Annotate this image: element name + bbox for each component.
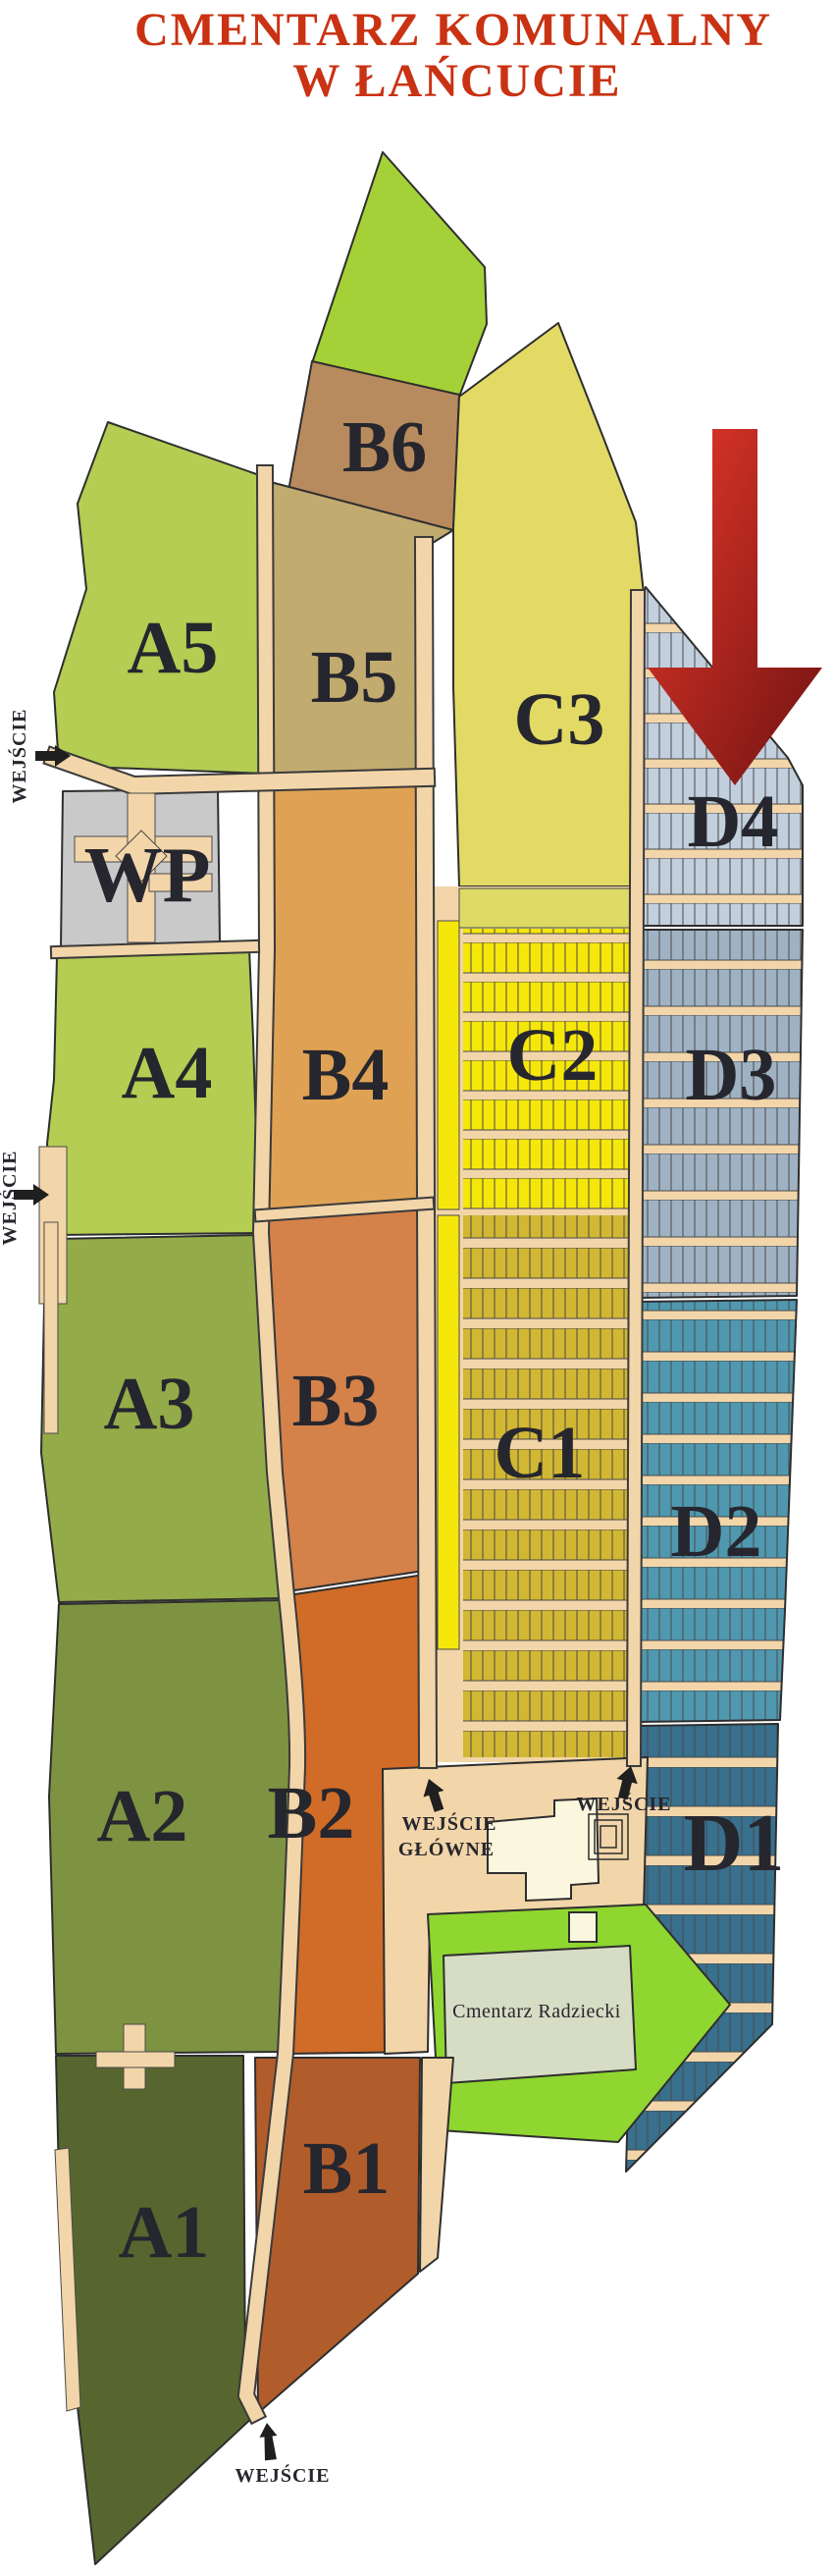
section-a3-label: A3 [104, 1363, 195, 1445]
section-b1-label: B1 [303, 2127, 391, 2210]
wp-a4-path [57, 946, 253, 952]
section-b5-label: B5 [311, 636, 398, 719]
cemetery-map-page: CMENTARZ KOMUNALNY W ŁAŃCUCIE [0, 0, 835, 2571]
section-c2-top-band [459, 888, 630, 928]
section-green-north-region [312, 152, 487, 397]
section-c3-label: C3 [514, 678, 605, 761]
section-a1-label: A1 [119, 2191, 210, 2274]
a2-structure-horizontal [96, 2052, 175, 2067]
section-a1-region [56, 2056, 255, 2564]
section-c1-label: C1 [495, 1412, 586, 1494]
b1-east-path [420, 2058, 453, 2272]
section-c2-label: C2 [507, 1014, 599, 1097]
section-b4-label: B4 [302, 1034, 390, 1116]
section-a5-region [54, 422, 265, 774]
section-d3-label: D3 [686, 1034, 777, 1116]
cemetery-map: CMENTARZ KOMUNALNY W ŁAŃCUCIE [0, 0, 835, 2571]
section-c3-region [453, 323, 644, 886]
cd-path [634, 597, 638, 1759]
section-a2-label: A2 [97, 1775, 188, 1857]
section-c1-left-strip [438, 1215, 459, 1649]
section-d1-label: D1 [684, 1798, 785, 1889]
west-upper-entrance-label: WEJŚCIE [7, 708, 30, 803]
section-d2-label: D2 [671, 1490, 762, 1573]
section-b3-label: B3 [292, 1360, 380, 1442]
bc-path [424, 546, 428, 1759]
section-b2-label: B2 [268, 1772, 355, 1854]
section-a4-label: A4 [122, 1032, 213, 1114]
map-title-line2: W ŁAŃCUCIE [292, 55, 621, 107]
soviet-cemetery-label: Cmentarz Radziecki [452, 2001, 621, 2022]
main-entrance-label-line2: GŁÓWNE [398, 1837, 495, 1860]
map-title-line1: CMENTARZ KOMUNALNY [134, 4, 772, 56]
south-entrance-arrow-icon [258, 2422, 280, 2461]
a3-edge-path [44, 1222, 58, 1433]
main-entrance-label-line1: WEJŚCIE [401, 1811, 496, 1835]
section-wp-label: WP [84, 832, 211, 919]
section-b6-label: B6 [342, 407, 427, 488]
section-d4-label: D4 [688, 780, 779, 863]
section-a5-label: A5 [128, 607, 219, 689]
section-b4-region [263, 776, 430, 1211]
section-c2-left-strip [438, 921, 459, 1209]
small-building [569, 1912, 597, 1942]
south-entrance-label: WEJŚCIE [235, 2463, 330, 2487]
